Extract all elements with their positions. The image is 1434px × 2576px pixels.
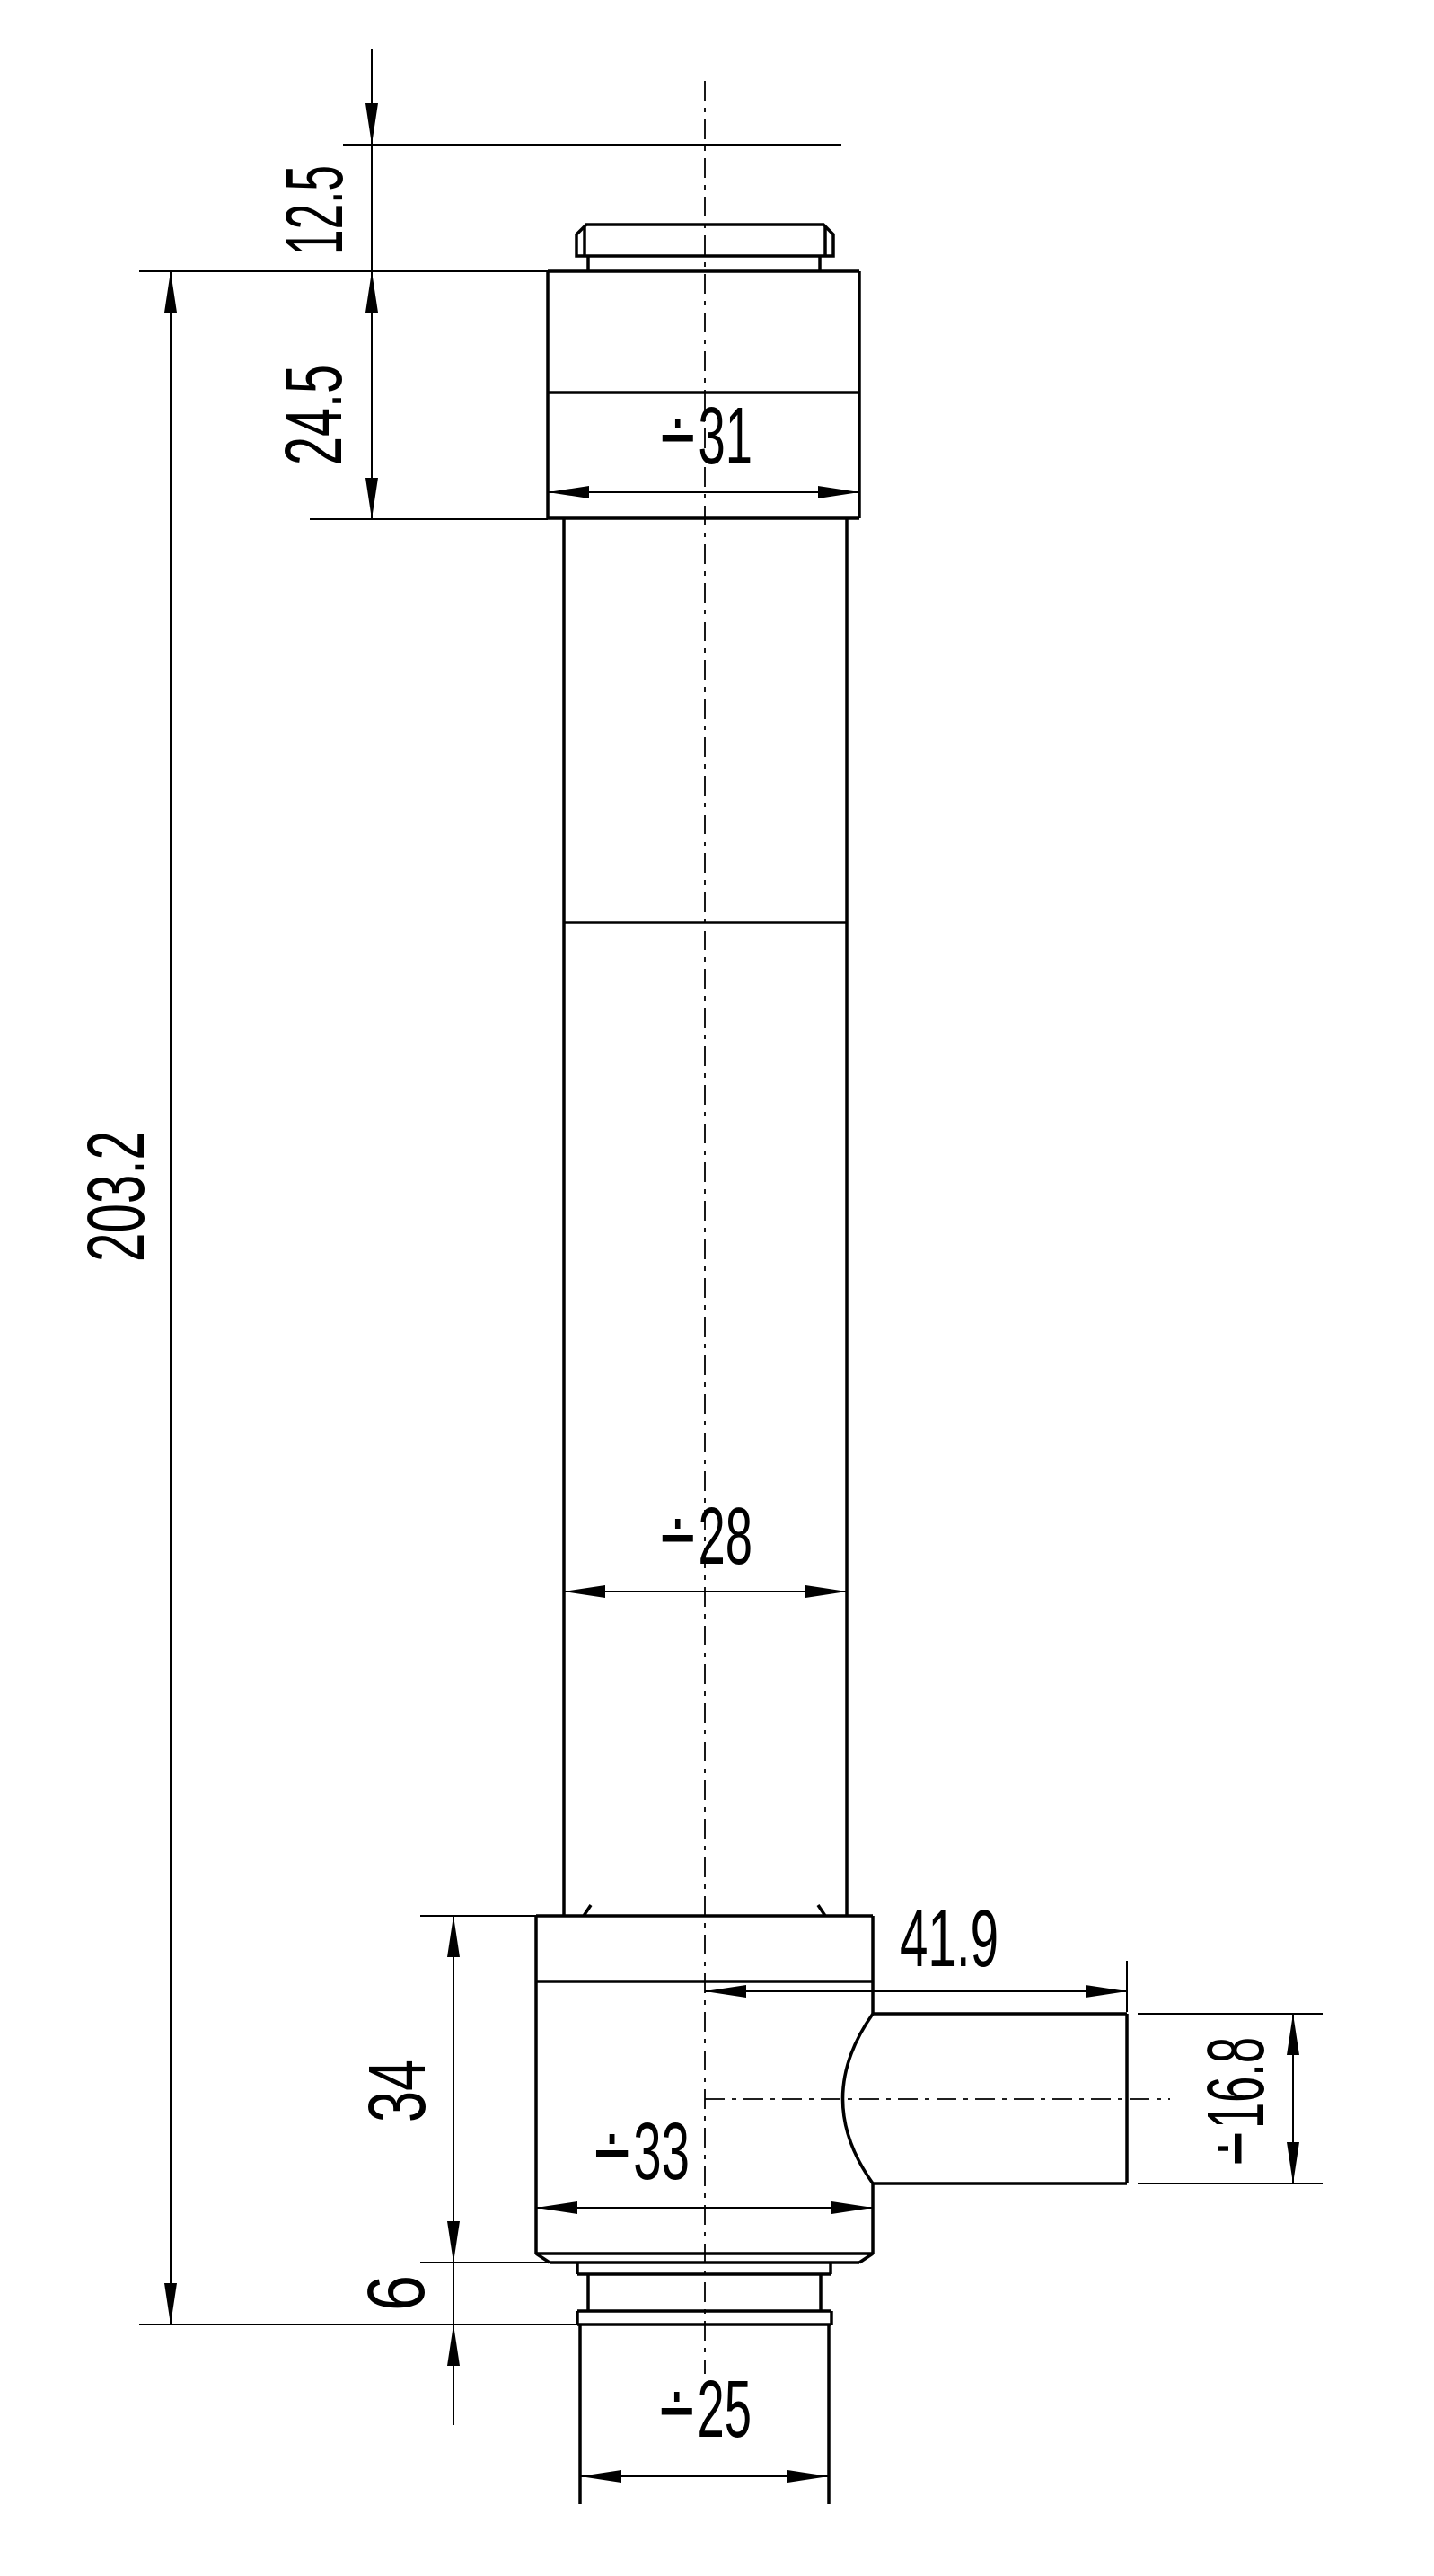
arrowhead-head-height: [365, 478, 378, 519]
dimension-tube-diameter: ∸28: [564, 1492, 847, 1598]
arrowhead-offset-top: [365, 103, 378, 145]
dim-label-overall: 203.2: [72, 1131, 162, 1262]
dim-label-offset-top: 12.5: [270, 165, 360, 255]
dimension-spigot-diameter: ∸25: [580, 2365, 829, 2483]
dim-label-head-height: 24.5: [269, 365, 359, 465]
arrowhead-head-dia-right: [818, 486, 859, 498]
arrowhead-tube-dia-left: [564, 1585, 605, 1598]
arrowhead-spigot-dia-right: [787, 2470, 829, 2483]
dimension-flange-height: 6: [352, 2263, 460, 2425]
dim-label-port-length: 41.9: [900, 1894, 999, 1984]
dimension-block-diameter: ∸33: [536, 2107, 873, 2214]
arrowhead-port-dia-top: [1287, 2014, 1299, 2055]
dimension-block-height: 34: [353, 1916, 460, 2263]
dim-label-block-dia: ∸33: [591, 2107, 690, 2197]
dim-label-spigot-dia: ∸25: [656, 2365, 752, 2455]
arrowhead-port-length-right: [1086, 1985, 1127, 1998]
dim-label-tube-dia: ∸28: [657, 1492, 752, 1582]
arrowhead-head-dia-left: [548, 486, 589, 498]
drawing-canvas: 12.5 24.5 203.2 ∸31 ∸28 41.9 ∸16.8: [0, 0, 1434, 2576]
arrowhead-flange-height-bottom: [447, 2325, 460, 2366]
dimension-head-diameter: ∸31: [548, 392, 859, 498]
dim-label-port-dia: ∸16.8: [1192, 2037, 1281, 2168]
centerlines: [705, 81, 1170, 2374]
dimension-overall-length: 203.2: [72, 271, 177, 2325]
arrowhead-overall-top: [164, 271, 177, 313]
dimension-offset-top: 12.5: [270, 49, 378, 313]
tube-bottom-chamfer-left: [584, 1905, 591, 1916]
arrowhead-block-height-bottom: [447, 2221, 460, 2263]
dim-label-block-height: 34: [353, 2060, 443, 2122]
arrowhead-tube-dia-right: [805, 1585, 847, 1598]
dim-label-flange-height: 6: [352, 2275, 442, 2311]
arrowhead-block-dia-left: [536, 2201, 577, 2214]
technical-drawing-sheet: 12.5 24.5 203.2 ∸31 ∸28 41.9 ∸16.8: [0, 0, 1434, 2576]
arrowhead-block-dia-right: [831, 2201, 873, 2214]
dim-label-head-dia: ∸31: [657, 392, 752, 481]
arrowhead-port-dia-bottom: [1287, 2142, 1299, 2183]
arrowhead-overall-bottom: [164, 2283, 177, 2325]
arrowhead-block-height-top: [447, 1916, 460, 1957]
arrowhead-port-length-left: [705, 1985, 746, 1998]
dimension-head-height: 24.5: [269, 271, 378, 519]
arrowhead-spigot-dia-left: [580, 2470, 621, 2483]
dimension-port-diameter: ∸16.8: [1192, 2014, 1299, 2183]
tube-bottom-chamfer-right: [818, 1905, 825, 1916]
